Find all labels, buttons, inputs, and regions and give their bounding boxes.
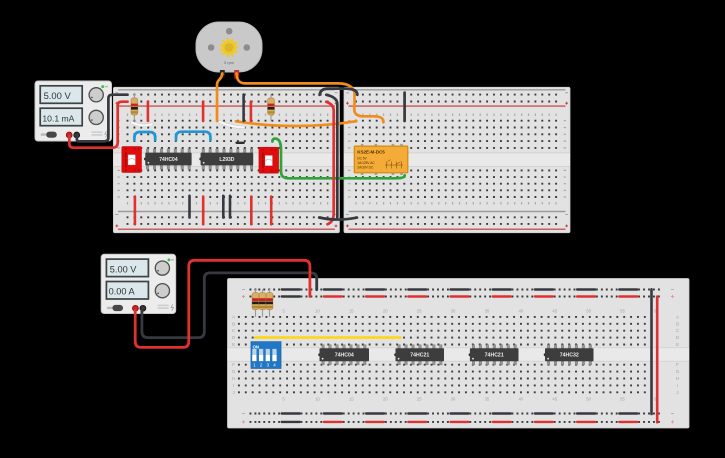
svg-text:5.00 V: 5.00 V [110, 264, 137, 274]
svg-text:DC 5V: DC 5V [357, 157, 367, 161]
svg-text:E: E [232, 342, 235, 347]
svg-text:35: 35 [485, 309, 490, 314]
svg-text:10: 10 [315, 309, 320, 314]
svg-text:2A/30V DC: 2A/30V DC [357, 166, 374, 170]
svg-text:5.00 V: 5.00 V [44, 90, 72, 101]
svg-text:55: 55 [620, 309, 625, 314]
svg-text:J: J [232, 390, 234, 395]
svg-text:10: 10 [315, 396, 320, 401]
svg-text:74HC04: 74HC04 [335, 353, 354, 359]
svg-text:A: A [232, 314, 235, 319]
svg-text:L293D: L293D [219, 157, 234, 163]
svg-text:25: 25 [417, 396, 422, 401]
svg-text:E: E [676, 342, 679, 347]
svg-text:B: B [232, 321, 235, 326]
svg-text:15: 15 [349, 396, 354, 401]
svg-text:35: 35 [485, 396, 490, 401]
svg-text:50: 50 [586, 396, 591, 401]
svg-text:55: 55 [620, 396, 625, 401]
svg-text:74HC04: 74HC04 [159, 157, 178, 163]
svg-text:G: G [676, 369, 680, 374]
svg-text:G: G [232, 369, 236, 374]
svg-text:30: 30 [451, 396, 456, 401]
svg-text:45: 45 [552, 309, 557, 314]
svg-text:10.1 mA: 10.1 mA [42, 113, 74, 123]
svg-text:30: 30 [451, 309, 456, 314]
svg-text:H: H [232, 376, 235, 381]
svg-text:F: F [676, 362, 679, 367]
svg-text:I: I [677, 383, 678, 388]
svg-text:C: C [232, 328, 235, 333]
svg-text:A: A [676, 314, 679, 319]
svg-text:25: 25 [417, 309, 422, 314]
svg-text:74HC21: 74HC21 [485, 353, 504, 359]
svg-text:20: 20 [383, 309, 388, 314]
svg-text:40: 40 [518, 309, 523, 314]
svg-text:15: 15 [349, 309, 354, 314]
svg-text:F: F [232, 362, 235, 367]
svg-text:D: D [232, 335, 235, 340]
svg-text:20: 20 [383, 396, 388, 401]
svg-text:74HC32: 74HC32 [560, 353, 579, 359]
svg-text:I: I [233, 383, 234, 388]
svg-text:D: D [676, 335, 679, 340]
svg-text:ON: ON [253, 344, 259, 349]
svg-text:0.00 A: 0.00 A [109, 287, 136, 297]
svg-text:0 rpm: 0 rpm [224, 61, 234, 65]
svg-text:H: H [676, 376, 679, 381]
svg-text:KS2E-M-DC5: KS2E-M-DC5 [357, 150, 385, 155]
svg-text:C: C [676, 328, 679, 333]
svg-text:50: 50 [586, 309, 591, 314]
svg-text:B: B [676, 321, 679, 326]
svg-text:74HC21: 74HC21 [410, 353, 429, 359]
svg-text:45: 45 [552, 396, 557, 401]
svg-text:40: 40 [518, 396, 523, 401]
svg-text:1A/125V AC: 1A/125V AC [357, 161, 375, 165]
svg-text:J: J [676, 390, 678, 395]
